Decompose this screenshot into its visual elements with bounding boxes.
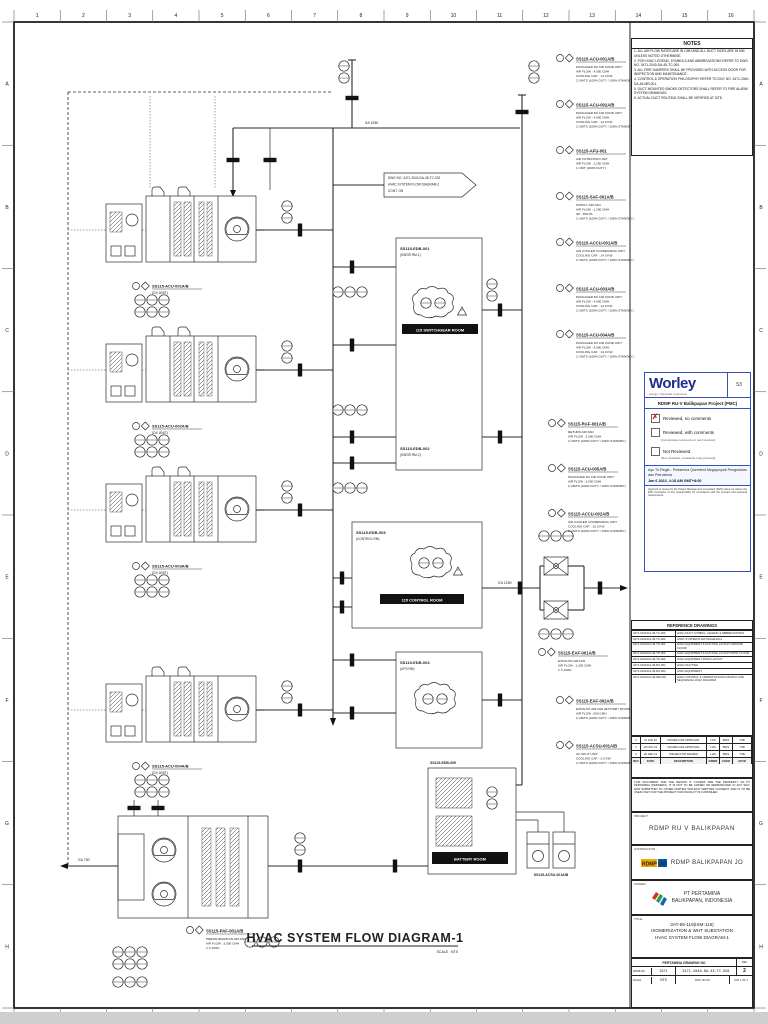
flow-label: EA 1250 (498, 581, 511, 585)
room-battery: SS115-EDB-005 BATTERY ROOM (428, 761, 516, 874)
unit-label-acu1: SS115-ACU-001A/B (DX UNIT) (133, 282, 203, 295)
disclaimer-text: THIS DOCUMENT AND THE DESIGN IT COVERS A… (632, 779, 752, 797)
callout-line: 2 UNITS (100% DUTY / 100% STANDBY) (576, 355, 634, 359)
reference-drawing-row: 3471-2040-DA-45-TD-002HVAC EQUIPMENT & D… (632, 651, 752, 657)
callout-line: PACKAGED DX AIR COND UNIT (576, 341, 622, 345)
cell: 3471-2040-DA-45-TD-003 (632, 657, 676, 662)
cell: HVAC EQUIPMENT & DUCTING LAYOUT GROUND F… (676, 643, 752, 651)
equipment-callout: SS115-EAF-002A/B EXHAUST AIR FAN (BATTER… (557, 696, 634, 720)
cell: BWS (720, 744, 733, 750)
stamp-fineprint: Approval or review by the Project Manage… (645, 485, 750, 500)
cell: ISSUED FOR APPROVAL (661, 744, 707, 750)
cell: LHS (707, 737, 720, 743)
revision-row: 115 NOV 21ISSUED FOR APPROVALLHSBWSYSB (632, 743, 752, 750)
callout-line: PACKAGED DX AIR COND UNIT (576, 65, 622, 69)
stamp-signature-area: Ayu Tri Regla - Pertamina Querident Mega… (645, 465, 750, 485)
equipment-callout: SS115-ACU-003A/B PACKAGED DX AIR COND UN… (557, 284, 634, 312)
callout-line: SUPPLY AIR FAN (576, 203, 601, 207)
callout-line: AIR COOLED CONDENSING UNIT (568, 520, 617, 524)
owner-label: OWNER : (634, 882, 647, 886)
stamp-option-reviewed-with-comments: Reviewed, with comments (651, 428, 750, 437)
room-ups: SS115-EDB-004 (UPS RM) (396, 652, 482, 748)
callout-line: PACKAGED DX AIR COND UNIT (576, 111, 622, 115)
title-subtitle: SCALE : NTS (437, 950, 459, 954)
flow-label: SA 1250 (365, 121, 378, 125)
callout-tag: SS115-ACU-005A/B (568, 467, 606, 472)
callout-line: 2 UNITS (100% DUTY / 100% STANDBY) (576, 309, 634, 313)
room-control: SS115-EDB-003 (CONTROL RM) 2 115 CONTROL… (352, 522, 482, 628)
callout-line: 2 UNITS (100% DUTY / 100% STANDBY) (576, 716, 634, 720)
callout-line: EXHAUST AIR FAN (558, 659, 585, 663)
cell: HVAC DUCT SYMBOL, LEGEND & ABBREVIATIONS (676, 631, 752, 636)
stamp-option-not-reviewed: Not Reviewed (651, 447, 750, 456)
contractor-label: CONTRACTOR : (634, 847, 657, 851)
stamp-option-reviewed-no-comments: ✗ Reviewed, no comments (651, 414, 750, 423)
room-name-label: BATTERY ROOM (454, 857, 487, 862)
rev-number: 2 (737, 968, 752, 974)
cell: HVAC SYSTEM FLOW DIAGRAM-2 (676, 637, 752, 642)
contractor-name: RDMP BALIKPAPAN JO (671, 860, 743, 866)
ruler-number: 7 (313, 13, 316, 19)
callout-ref-symbols (133, 282, 150, 290)
title-box: TITLE : 3AT-55-115(ISM-115) ISOMERIZATIO… (631, 915, 753, 958)
ruler-number: 3 (128, 13, 131, 19)
callout-tag: SS115-SAF-001A/B (576, 195, 614, 200)
notes-title: NOTES (632, 39, 752, 49)
cell: 3471-2040-DA-45-DS-001 (632, 663, 676, 668)
equipment-tag: SS115-ACSU-001A/B (534, 873, 569, 877)
ruler-number: 2 (82, 13, 85, 19)
room-name-label: 115 SWITCHGEAR ROOM (416, 328, 465, 333)
callout-tag: SS115-EAF-002A/B (576, 699, 614, 704)
cell: LHS (707, 751, 720, 757)
cell: 3471-2040-DA-45-TC-000 (632, 631, 676, 636)
stamp-header: Worley energy | chemicals | resources 53 (645, 373, 750, 398)
ruler-number: 6 (267, 13, 270, 19)
packaged-dx-unit-acu3 (106, 467, 264, 542)
page-title: HVAC SYSTEM FLOW DIAGRAM-1 (247, 931, 464, 945)
equipment-callout: SS115-AFU-001 AIR FILTRATION UNIT AIR FL… (557, 146, 627, 170)
room-tag: SS115-EDB-005 (430, 761, 456, 765)
cell: HVAC DUCTING (676, 663, 752, 668)
scale-value: NTS (652, 976, 676, 984)
ruler-letter: E (759, 575, 763, 581)
callout-line: 2 UNITS (100% DUTY / 100% STANDBY) (568, 529, 626, 533)
docid-label: DOC ID NO (676, 976, 730, 984)
ruler-letter: C (5, 328, 9, 334)
callout-line: 2 UNITS (100% DUTY / 100% STANDBY) (568, 439, 626, 443)
project-label: PROJECT : (634, 814, 650, 818)
room-subtag: (CONTROL RM) (356, 537, 379, 541)
cell: ISSUED FOR REVIEW (661, 751, 707, 757)
callout-line: AIR FLOW : 4,500 CMH (576, 116, 609, 120)
ruler-letter: B (759, 205, 763, 211)
instrument-cloud (413, 287, 454, 318)
drawing-number: 3471-2040-DA-45-TC-001 (676, 967, 737, 975)
unit-label-acu4: SS115-ACU-004A/B (DX UNIT) (133, 762, 203, 775)
pressurization-fan-unit (118, 816, 268, 918)
duct-network (60, 60, 628, 869)
callout-line: AIR FLOW : 4,500 CMH (576, 300, 609, 304)
revision-table: 211 JAN 22ISSUED FOR APPROVALLHSBWSYSB11… (631, 736, 753, 778)
ruler-number: 14 (636, 13, 642, 19)
callout-line: 2 UNITS (100% DUTY / 100% STANDBY) (576, 217, 634, 221)
note-item: 1. ALL AIR FLOW RATES ARE IN CMH AND ALL… (632, 49, 752, 58)
ruler-number: 16 (728, 13, 734, 19)
cell: APVD (733, 758, 752, 764)
reference-drawing-row: 3471-2040-DA-45-TD-003HVAC EQUIPMENT ROO… (632, 656, 752, 662)
notes-box: NOTES 1. ALL AIR FLOW RATES ARE IN CMH A… (631, 38, 753, 156)
room-switchgear: SS115-EDB-001 (SWGR RM-1) 2 115 SWITCHGE… (396, 238, 482, 470)
cell: REV (632, 758, 641, 764)
worley-review-stamp: Worley energy | chemicals | resources 53… (644, 372, 751, 572)
reference-drawing-row: 3471-2040-DA-45-DS-002HVAC EQUIPMENT (632, 668, 752, 674)
room-subtag: (SWGR RM-2) (400, 453, 421, 457)
ruler-number: 13 (589, 13, 595, 19)
drawing-title: HVAC SYSTEM FLOW DIAGRAM-1 SCALE : NTS (247, 931, 464, 954)
option-note: (Not reviewed, contractor may proceed) (661, 456, 750, 460)
ruler-number: 15 (682, 13, 688, 19)
callout-tag: SS115-ACCU-001A/B (576, 241, 617, 246)
reference-drawing-row: 3471-2040-DA-45-TC-002HVAC SYSTEM FLOW D… (632, 636, 752, 642)
equipment-callout: SS115-ACCU-001A/B AIR COOLED CONDENSING … (557, 238, 634, 262)
equipment-subtag: (DX UNIT) (152, 771, 168, 775)
flow-label: EA 750 (78, 858, 89, 862)
room-tag: SS115-EDB-002 (400, 446, 430, 451)
revision-row: REVDATEDESCRIPTIONDRWNCHKDAPVD (632, 757, 752, 764)
checkbox-empty (651, 428, 660, 437)
ruler-number: 5 (221, 13, 224, 19)
ruler-letter: D (759, 451, 763, 457)
note-item: 5. DUCT MOUNTED SMOKE DETECTORS SHALL RE… (632, 86, 752, 95)
ruler-letter: G (5, 821, 9, 827)
ruler-number: 1 (36, 13, 39, 19)
cell: HVAC CONTROL & OPERATION PHILOSOPHY AND … (676, 675, 752, 683)
cell: 20 SEP 21 (641, 751, 661, 757)
ruler-letter: B (5, 205, 9, 211)
note-item: 2. FOR HVAC LEGEND, SYMBOLS AND ABBREVIA… (632, 58, 752, 67)
cell: 3471-2040-DA-45-TD-001 (632, 643, 676, 651)
callout-line: AC SPLIT UNIT (576, 752, 598, 756)
callout-tag: SS115-ACSU-001A/B (576, 744, 617, 749)
ruler-number: 8 (359, 13, 362, 19)
ruler-letter: E (5, 575, 9, 581)
ruler-letter: F (759, 698, 762, 704)
callout-line: COOLING CAP. : 14.0 KW (576, 74, 612, 78)
unit-label-acu2: SS115-ACU-002A/B (DX UNIT) (133, 422, 203, 435)
cell: ISSUED FOR APPROVAL (661, 737, 707, 743)
equipment-subtag: (DX UNIT) (152, 291, 168, 295)
option-label: Reviewed, no comments (663, 416, 711, 421)
notes-list: 1. ALL AIR FLOW RATES ARE IN CMH AND ALL… (632, 49, 752, 101)
callout-tag: SS115-AFU-001 (576, 149, 607, 154)
callout-line: 2 X 100% (558, 668, 572, 672)
wpb-number: 3471 (652, 967, 676, 975)
cell: YSB (733, 751, 752, 757)
ruler-number: 11 (497, 13, 502, 19)
callout-line: PRESSURIZATION AIR FAN (206, 937, 246, 941)
signer-name: Ayu Tri Regla - Pertamina Querident Mega… (648, 468, 747, 477)
room-tag: SS115-EDB-001 (400, 246, 430, 251)
callout-line: AIR FLOW : 4,500 CMH (576, 346, 609, 350)
cell: 3471-2040-DA-45-TD-002 (632, 652, 676, 657)
equipment-callout: SS115-ACU-002A/B PACKAGED DX AIR COND UN… (557, 100, 634, 128)
option-note: (Incorporate comments in next revision) (661, 438, 750, 442)
unit-label-acu3: SS115-ACU-003A/B (DX UNIT) (133, 562, 203, 575)
instrument-cloud (411, 547, 452, 578)
callout-tag: SS115-ACU-003A/B (576, 287, 614, 292)
cell: DATE (641, 758, 661, 764)
rdmp-jo-logo: RDMP JO (641, 857, 667, 869)
callout-line: COOLING CAP. : 3.5 KW (576, 757, 611, 761)
cell: HVAC EQUIPMENT (676, 669, 752, 674)
equipment-callout: SS115-ACCU-002A/B AIR COOLED CONDENSING … (549, 509, 626, 533)
ruler-letter: H (5, 944, 9, 950)
project-name: RDMP RU V BALIKPAPAN (632, 813, 752, 844)
callout-line: AIR FLOW : 3,500 CMH (206, 942, 239, 946)
cell: CHKD (720, 758, 733, 764)
reference-drawing-row: 3471-2040-DA-45-TC-000HVAC DUCT SYMBOL, … (632, 630, 752, 636)
callout-line: PACKAGED DX AIR COND UNIT (568, 475, 614, 479)
drawing-no-band: PERTAMINA DRAWING NO (632, 959, 737, 966)
offpage-connector-flag: DWG NO. 3471-2040-DA-45-TC-002 HVAC SYST… (333, 173, 476, 197)
callout-tag: SS115-PAF-001A/B (206, 929, 243, 934)
cell: 3471-2040-DA-45-DS-002 (632, 669, 676, 674)
cell: DRWN (707, 758, 720, 764)
packaged-dx-unit-acu4 (106, 667, 264, 742)
stamp-project-name: RDMP RU-V Balikpapan Project (PMC) (645, 398, 750, 409)
equipment-tag: SS115-ACU-001A/B (152, 284, 189, 289)
cell: 3471-2040-DA-45-TC-002 (632, 637, 676, 642)
callout-tag: SS115-ACU-004A/B (576, 333, 614, 338)
equipment-tag: SS115-ACU-003A/B (152, 564, 189, 569)
callout-line: 2 UNITS (100% DUTY / 100% STANDBY) (576, 761, 634, 765)
ruler-letter: G (759, 821, 763, 827)
callout-line: 2 X 100% (206, 946, 220, 950)
reference-drawing-row: 3471-2040-DA-45-MR-001HVAC CONTROL & OPE… (632, 674, 752, 683)
worley-logo-text: Worley (649, 376, 725, 391)
callout-tag: SS115-EAF-001A/B (558, 651, 596, 656)
callout-line: AIR FLOW : 4,500 CMH (576, 70, 609, 74)
note-item: 3. ALL FIRE DAMPERS SHALL BE PROVIDED WI… (632, 68, 752, 77)
cell: HVAC EQUIPMENT & DUCTING LAYOUT FIRST FL… (676, 652, 752, 657)
equipment-subtag: (DX UNIT) (152, 571, 168, 575)
cell: 2 (632, 737, 641, 743)
equipment-tag: SS115-ACU-004A/B (152, 764, 189, 769)
ruler-letter: F (5, 698, 8, 704)
pertamina-logo (652, 889, 668, 906)
callout-line: AIR FLOW : 1,250 CMH (576, 208, 609, 212)
stamp-date: Jan 6 2022, 4:18 AM GMT+8:00 (648, 479, 747, 483)
equipment-callout: SS115-EAF-001A/B EXHAUST AIR FAN AIR FLO… (539, 648, 609, 672)
cell: 15 NOV 21 (641, 744, 661, 750)
sheet-number: SHT 1 OF 1 (730, 979, 752, 982)
cell: YSB (733, 737, 752, 743)
ruler-letter: A (5, 82, 9, 88)
equipment-callout: SS115-ACU-004A/B PACKAGED DX AIR COND UN… (557, 330, 634, 358)
owner-line2: BALIKPAPAN, INDONESIA (672, 898, 733, 905)
callout-line: SP : 350 PA (576, 212, 594, 216)
reference-drawings-title: REFERENCE DRAWINGS (632, 621, 752, 630)
wpb-label: WP&B NO (632, 968, 652, 975)
cell: 1 (632, 744, 641, 750)
ruler-number: 12 (543, 13, 549, 19)
callout-tag: SS115-ACCU-002A/B (568, 512, 609, 517)
scale-label: SCALE (632, 977, 652, 984)
ruler-number: 9 (406, 13, 409, 19)
callout-line: 2 UNITS (100% DUTY / 100% STANDBY) (576, 125, 634, 129)
callout-line: EXHAUST AIR FAN (BATTERY ROOM) (576, 707, 631, 711)
callout-line: PACKAGED DX AIR COND UNIT (576, 295, 622, 299)
callout-tag: SS115-ACU-002A/B (576, 103, 614, 108)
option-label: Reviewed, with comments (663, 430, 714, 435)
note-item: 6. ACTUAL DUCT ROUTING SHALL BE VERIFIED… (632, 96, 752, 101)
room-subtag: (UPS RM) (400, 667, 415, 671)
equipment-callout: SS115-ACU-005A/B PACKAGED DX AIR COND UN… (549, 464, 626, 488)
callout-line: 2 UNITS (100% DUTY / 100% STANDBY) (576, 258, 634, 262)
room-tag: SS115-EDB-003 (356, 530, 386, 535)
project-box: PROJECT : RDMP RU V BALIKPAPAN (631, 812, 753, 845)
ruler-letter: D (5, 451, 9, 457)
cell: BWS (720, 751, 733, 757)
callout-line: RETURN AIR FAN (568, 430, 594, 434)
ruler-number: 10 (451, 13, 457, 19)
check-x-mark: ✗ (652, 413, 658, 421)
rdmp-logo-text: RDMP (642, 861, 657, 867)
cell: 0 (632, 751, 641, 757)
equipment-callout: SS115-ACSU-001A/B AC SPLIT UNIT COOLING … (557, 741, 634, 765)
reference-drawings-rows: 3471-2040-DA-45-TC-000HVAC DUCT SYMBOL, … (632, 630, 752, 683)
ruler-number: 4 (174, 13, 177, 19)
room-subtag: (SWGR RM-1) (400, 253, 421, 257)
owner-box: OWNER : PT PERTAMINA BALIKPAPAN, INDONES… (631, 880, 753, 915)
equipment-callout: SS115-SAF-001A/B SUPPLY AIR FAN AIR FLOW… (557, 192, 634, 220)
title-line: HVAC SYSTEM FLOW DIAGRAM-1 (632, 935, 752, 941)
reference-drawing-row: 3471-2040-DA-45-DS-001HVAC DUCTING (632, 662, 752, 668)
equipment-callout: SS115-RAF-001A/B RETURN AIR FAN AIR FLOW… (549, 419, 626, 443)
callout-line: COOLING CAP. : 14.0 KW (576, 350, 612, 354)
drawing-number-block: PERTAMINA DRAWING NO REV WP&B NO 3471 34… (631, 958, 753, 1008)
reference-drawings-table: REFERENCE DRAWINGS 3471-2040-DA-45-TC-00… (631, 620, 753, 736)
drawing-sheet: SS115-ACU-001A/B (DX UNIT) SS115-ACU-002… (0, 0, 768, 1012)
ruler-letter: A (759, 82, 763, 88)
instrument-cloud (415, 683, 456, 714)
room-name-label: 115 CONTROL ROOM (402, 598, 443, 603)
callout-line: AIR FLOW : 3,000 CMH (568, 480, 601, 484)
title-label: TITLE : (634, 917, 644, 921)
callout-tag: SS115-RAF-001A/B (568, 422, 606, 427)
callout-line: 2 UNITS (100% DUTY / 100% STANDBY) (568, 484, 626, 488)
checkbox-empty (651, 447, 660, 456)
stamp-code: 53 (727, 373, 750, 397)
cell: LHS (707, 744, 720, 750)
callout-line: AIR COOLED CONDENSING UNIT (576, 249, 625, 253)
rev-label: REV (737, 959, 752, 966)
revision-row: 211 JAN 22ISSUED FOR APPROVALLHSBWSYSB (632, 737, 752, 743)
callout-line: COOLING CAP. : 10.5 KW (568, 525, 604, 529)
note-item: 4. CONTROL & OPERATION PHILOSOPHY REFER … (632, 77, 752, 86)
room-tag: SS115-EDB-004 (400, 660, 430, 665)
flag-line: DWG NO. 3471-2040-DA-45-TC-002 (388, 176, 440, 180)
callout-line: AIR FLOW : 900 CMH (576, 712, 607, 716)
packaged-dx-unit-acu2 (106, 327, 264, 402)
callout-tag: SS115-ACU-001A/B (576, 57, 614, 62)
packaged-dx-unit-acu1 (106, 187, 264, 262)
callout-line: COOLING CAP. : 14.0 KW (576, 304, 612, 308)
callout-line: AIR FILTRATION UNIT (576, 157, 608, 161)
worley-logo: Worley energy | chemicals | resources (645, 373, 727, 397)
option-label: Not Reviewed (663, 449, 690, 454)
cell: 3471-2040-DA-45-MR-001 (632, 675, 676, 683)
flag-line: HVAC SYSTEM FLOW DIAGRAM-2 (388, 183, 440, 187)
callout-line: AIR FLOW : 2,500 CMH (568, 435, 601, 439)
cell: BWS (720, 737, 733, 743)
cell: 11 JAN 22 (641, 737, 661, 743)
cell: HVAC EQUIPMENT ROOF LAYOUT (676, 657, 752, 662)
cell: YSB (733, 744, 752, 750)
callout-line: COOLING CAP. : 14.0 KW (576, 254, 612, 258)
flag-line: CONT. ON (388, 189, 404, 193)
reference-drawing-row: 3471-2040-DA-45-TD-001HVAC EQUIPMENT & D… (632, 642, 752, 651)
revision-row: 020 SEP 21ISSUED FOR REVIEWLHSBWSYSB (632, 750, 752, 757)
callout-line: COOLING CAP. : 14.0 KW (576, 120, 612, 124)
callout-line: AIR FLOW : 1,250 CMH (576, 162, 609, 166)
ruler-letter: C (759, 328, 763, 334)
contractor-box: CONTRACTOR : RDMP JO RDMP BALIKPAPAN JO (631, 845, 753, 880)
ruler-letter: H (759, 944, 763, 950)
revision-rows: 211 JAN 22ISSUED FOR APPROVALLHSBWSYSB11… (632, 737, 752, 764)
callout-line: 1 UNIT (100% DUTY) (576, 166, 606, 170)
equipment-callout: SS115-ACU-001A/B PACKAGED DX AIR COND UN… (557, 54, 634, 82)
jo-logo-text: JO (659, 861, 666, 867)
callout-line: 2 UNITS (100% DUTY / 100% STANDBY) (576, 79, 634, 83)
worley-tagline: energy | chemicals | resources (649, 392, 725, 396)
disclaimer-box: THIS DOCUMENT AND THE DESIGN IT COVERS A… (631, 778, 753, 812)
cell: DESCRIPTION (661, 758, 707, 764)
equipment-subtag: (DX UNIT) (152, 431, 168, 435)
ac-split-units: SS115-ACSU-001A/B (527, 832, 575, 877)
callout-line: AIR FLOW : 1,250 CMH (558, 664, 591, 668)
checkbox-checked: ✗ (651, 414, 660, 423)
equipment-tag: SS115-ACU-002A/B (152, 424, 189, 429)
